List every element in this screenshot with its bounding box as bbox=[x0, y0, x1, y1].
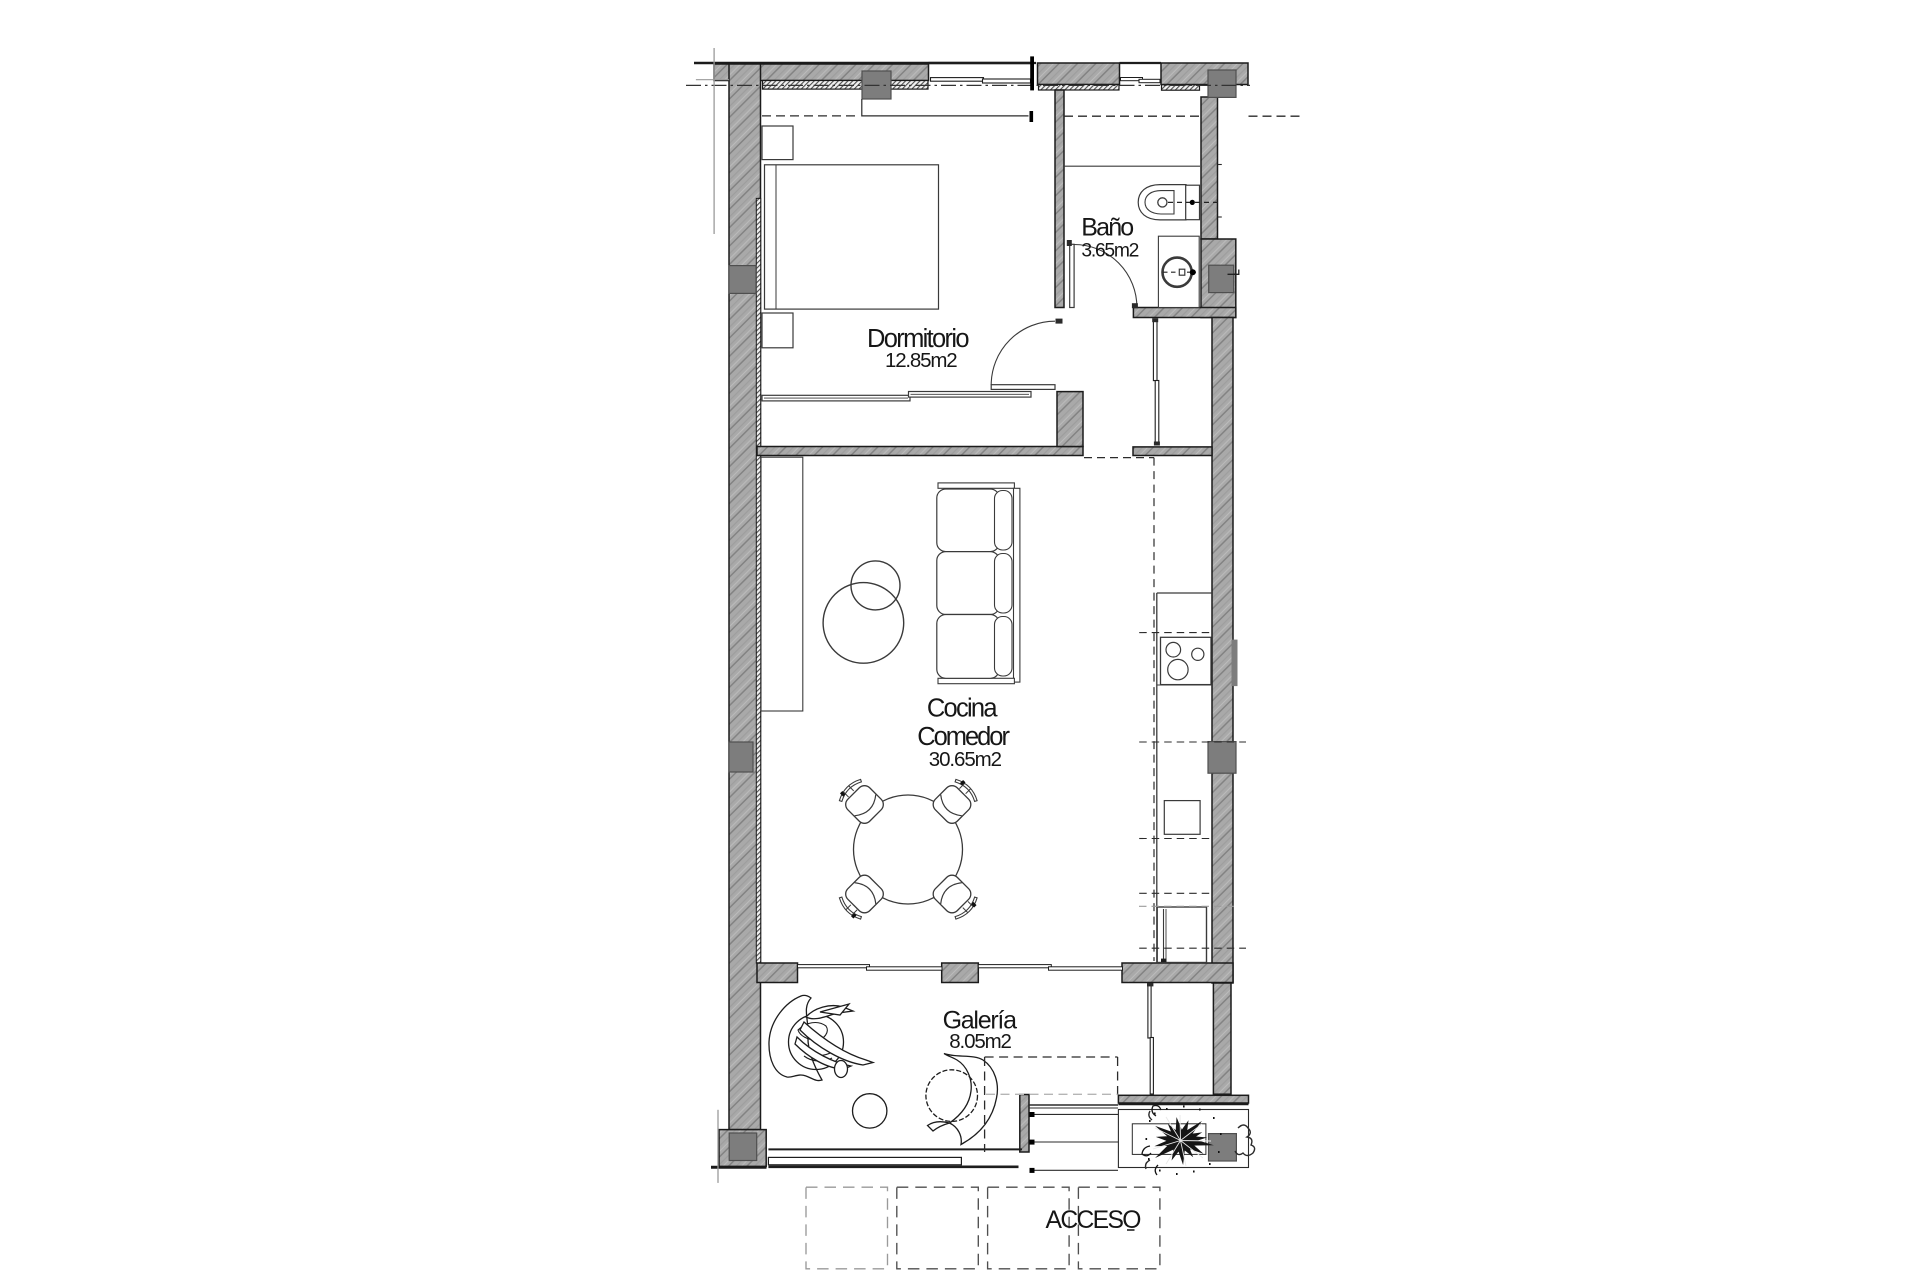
svg-text:30.65m2: 30.65m2 bbox=[929, 748, 1002, 771]
svg-text:3.65m2: 3.65m2 bbox=[1081, 241, 1139, 262]
svg-text:ACCESO: ACCESO bbox=[1046, 1207, 1142, 1234]
svg-text:8.05m2: 8.05m2 bbox=[949, 1030, 1012, 1053]
svg-text:Baño: Baño bbox=[1081, 213, 1134, 241]
svg-text:Comedor: Comedor bbox=[917, 723, 1010, 751]
svg-text:12.85m2: 12.85m2 bbox=[885, 349, 958, 372]
svg-text:Cocina: Cocina bbox=[927, 695, 998, 723]
